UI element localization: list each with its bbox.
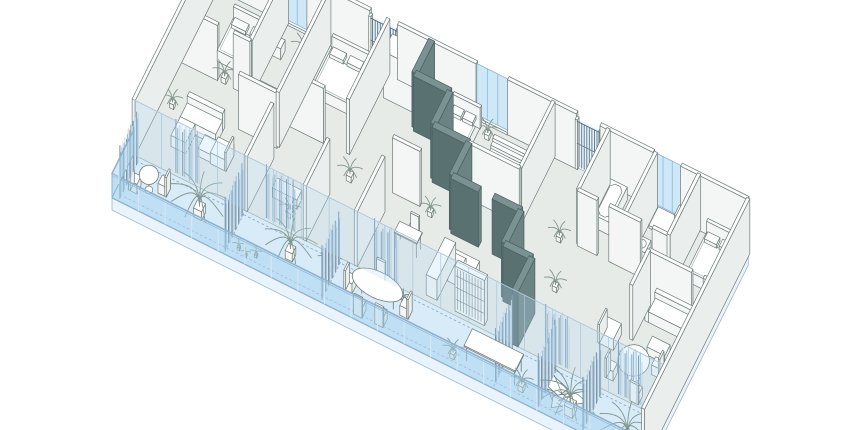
floor-plan-drawing: Axonometric floor plan — apartment level… [0, 0, 854, 430]
corridor-dark-wall [451, 173, 482, 248]
axonometric-floor-plan: Axonometric floor plan — apartment level… [0, 0, 854, 430]
wall [577, 188, 598, 256]
